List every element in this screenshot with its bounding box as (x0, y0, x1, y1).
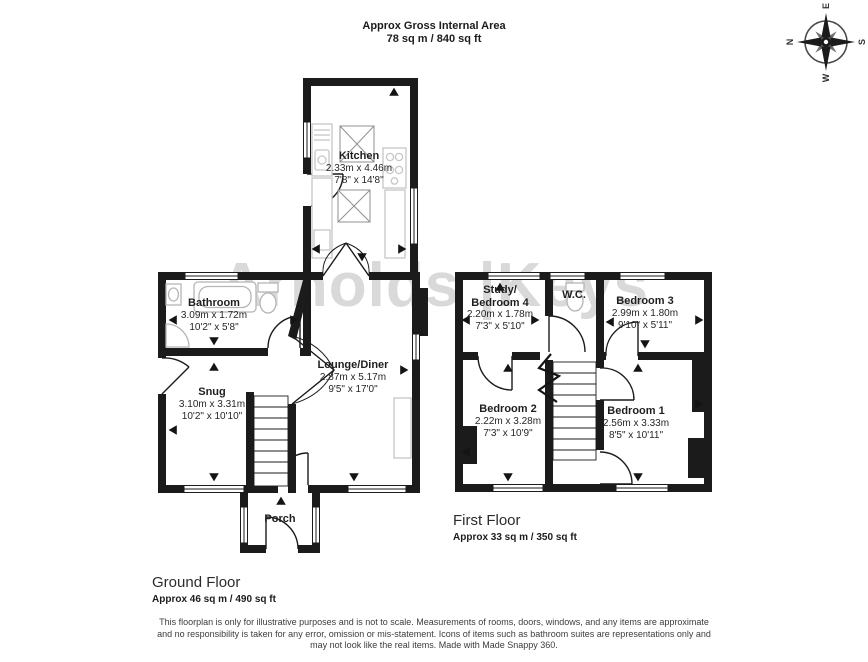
floorplan-canvas: N E S W (0, 0, 868, 662)
room-name: Bathroom (154, 297, 274, 310)
floor-area: Approx 33 sq m / 350 sq ft (453, 532, 577, 543)
room-name: Snug (152, 386, 272, 399)
disclaimer-text: This floorplan is only for illustrative … (104, 617, 764, 652)
floor-name: Ground Floor (152, 574, 276, 591)
room-label-lounge-diner: Lounge/Diner 2.87m x 5.17m 9'5" x 17'0" (293, 359, 413, 396)
compass-icon: N E S W (785, 3, 867, 82)
room-dim-imperial: 9'5" x 17'0" (293, 384, 413, 396)
compass-north-label: N (785, 39, 795, 46)
compass-east-label: E (821, 3, 831, 9)
floorplan-page: { "header": { "title": "Approx Gross Int… (0, 0, 868, 662)
room-dim-metric: 2.56m x 3.33m (576, 418, 696, 430)
room-label-porch: Porch (240, 513, 320, 526)
room-dim-imperial: 10'2" x 10'10" (152, 411, 272, 423)
compass-west-label: W (821, 73, 831, 82)
room-dim-imperial: 8'5" x 10'11" (576, 430, 696, 442)
room-label-study-bedroom4: Study/ Bedroom 4 2.20m x 1.78m 7'3" x 5'… (440, 284, 560, 333)
room-name: Lounge/Diner (293, 359, 413, 372)
room-dim-metric: 2.33m x 4.46m (299, 163, 419, 175)
room-label-bedroom3: Bedroom 3 2.99m x 1.80m 9'10" x 5'11" (585, 295, 705, 332)
room-dim-imperial: 7'3" x 5'10" (440, 321, 560, 333)
compass-south-label: S (857, 39, 867, 45)
room-dim-metric: 3.10m x 3.31m (152, 399, 272, 411)
room-dim-metric: 2.20m x 1.78m (440, 309, 560, 321)
room-label-snug: Snug 3.10m x 3.31m 10'2" x 10'10" (152, 386, 272, 423)
room-dim-imperial: 9'10" x 5'11" (585, 320, 705, 332)
room-label-kitchen: Kitchen 2.33m x 4.46m 7'8" x 14'8" (299, 150, 419, 187)
floor-name: First Floor (453, 512, 577, 529)
room-name: Bedroom 1 (576, 405, 696, 418)
room-dim-metric: 2.87m x 5.17m (293, 372, 413, 384)
room-dim-imperial: 7'3" x 10'9" (448, 428, 568, 440)
room-name: Bedroom 2 (448, 403, 568, 416)
room-dim-metric: 2.99m x 1.80m (585, 308, 705, 320)
room-name: Study/ Bedroom 4 (440, 284, 560, 309)
room-dim-imperial: 10'2" x 5'8" (154, 322, 274, 334)
room-name: Porch (240, 513, 320, 526)
first-floor-caption: First Floor Approx 33 sq m / 350 sq ft (453, 512, 577, 543)
room-label-bathroom: Bathroom 3.09m x 1.72m 10'2" x 5'8" (154, 297, 274, 334)
room-dim-metric: 3.09m x 1.72m (154, 310, 274, 322)
ground-floor-caption: Ground Floor Approx 46 sq m / 490 sq ft (152, 574, 276, 605)
floor-area: Approx 46 sq m / 490 sq ft (152, 594, 276, 605)
room-dim-metric: 2.22m x 3.28m (448, 416, 568, 428)
room-name: Kitchen (299, 150, 419, 163)
room-label-bedroom1: Bedroom 1 2.56m x 3.33m 8'5" x 10'11" (576, 405, 696, 442)
kitchen-unit-icon (312, 124, 405, 258)
room-label-bedroom2: Bedroom 2 2.22m x 3.28m 7'3" x 10'9" (448, 403, 568, 440)
window-seat-icon (394, 398, 411, 458)
room-dim-imperial: 7'8" x 14'8" (299, 175, 419, 187)
room-name: Bedroom 3 (585, 295, 705, 308)
